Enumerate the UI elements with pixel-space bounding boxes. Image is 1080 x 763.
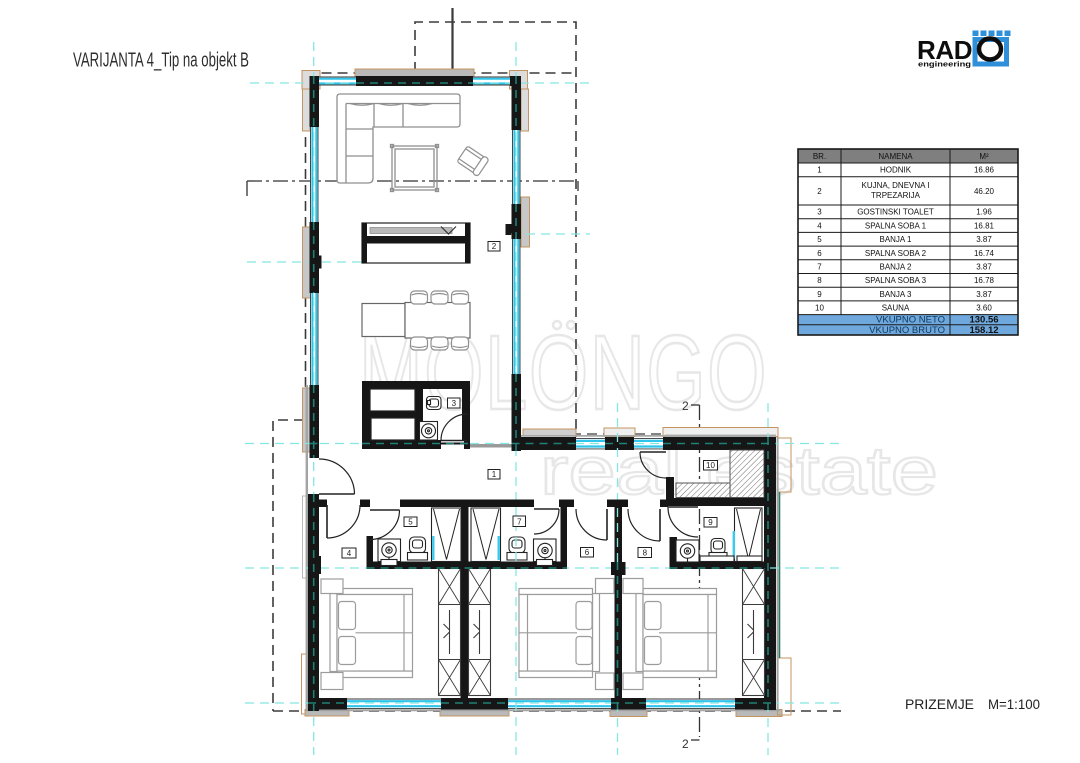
svg-text:9: 9 <box>817 290 822 299</box>
svg-text:1: 1 <box>817 166 822 175</box>
svg-text:M=1:100: M=1:100 <box>988 697 1040 712</box>
svg-text:8: 8 <box>817 276 822 285</box>
svg-text:6: 6 <box>585 548 590 557</box>
svg-text:3.87: 3.87 <box>976 263 992 272</box>
svg-text:SPALNA SOBA 1: SPALNA SOBA 1 <box>865 221 927 230</box>
svg-text:158.12: 158.12 <box>969 325 998 336</box>
svg-text:3.60: 3.60 <box>976 304 992 313</box>
svg-text:2: 2 <box>682 399 689 413</box>
svg-text:4: 4 <box>347 549 352 558</box>
svg-text:16.81: 16.81 <box>974 221 995 230</box>
svg-text:KUJNA, DNEVNA I: KUJNA, DNEVNA I <box>861 181 929 190</box>
svg-text:3: 3 <box>452 399 457 408</box>
svg-text:HODNIK: HODNIK <box>880 166 912 175</box>
svg-text:SAUNA: SAUNA <box>882 304 910 313</box>
svg-text:2: 2 <box>492 242 497 251</box>
svg-text:BANJA 3: BANJA 3 <box>879 290 912 299</box>
svg-text:3.87: 3.87 <box>976 290 992 299</box>
svg-text:M²: M² <box>979 152 989 161</box>
svg-text:16.74: 16.74 <box>974 249 995 258</box>
svg-text:SPALNA SOBA 2: SPALNA SOBA 2 <box>865 249 927 258</box>
svg-text:10: 10 <box>815 304 824 313</box>
svg-text:3.87: 3.87 <box>976 235 992 244</box>
svg-text:SPALNA SOBA 3: SPALNA SOBA 3 <box>865 276 927 285</box>
svg-text:1: 1 <box>492 470 497 479</box>
svg-text:NAMENA: NAMENA <box>878 152 913 161</box>
svg-text:VARIJANTA 4_Tip na objekt B: VARIJANTA 4_Tip na objekt B <box>73 49 249 72</box>
svg-text:BR.: BR. <box>813 152 826 161</box>
svg-text:TRPEZARIJA: TRPEZARIJA <box>871 191 921 200</box>
svg-text:16.86: 16.86 <box>974 166 995 175</box>
svg-text:VKUPNO BRUTO: VKUPNO BRUTO <box>869 325 945 336</box>
svg-text:5: 5 <box>817 235 822 244</box>
svg-text:5: 5 <box>408 518 413 527</box>
svg-text:2: 2 <box>817 187 822 196</box>
svg-text:46.20: 46.20 <box>974 187 995 196</box>
svg-text:7: 7 <box>817 263 822 272</box>
svg-text:BANJA 2: BANJA 2 <box>879 263 912 272</box>
svg-text:BANJA 1: BANJA 1 <box>879 235 912 244</box>
svg-text:4: 4 <box>817 221 822 230</box>
svg-text:10: 10 <box>706 461 715 470</box>
svg-text:16.78: 16.78 <box>974 276 995 285</box>
svg-text:6: 6 <box>817 249 822 258</box>
svg-text:8: 8 <box>643 549 648 558</box>
svg-text:1.96: 1.96 <box>976 208 992 217</box>
svg-text:7: 7 <box>517 518 522 527</box>
svg-text:PRIZEMJE: PRIZEMJE <box>905 697 974 712</box>
svg-text:engineering: engineering <box>918 60 972 69</box>
svg-text:3: 3 <box>817 208 822 217</box>
svg-text:2: 2 <box>682 737 689 751</box>
svg-text:GOSTINSKI TOALET: GOSTINSKI TOALET <box>857 208 934 217</box>
svg-text:9: 9 <box>708 518 713 527</box>
